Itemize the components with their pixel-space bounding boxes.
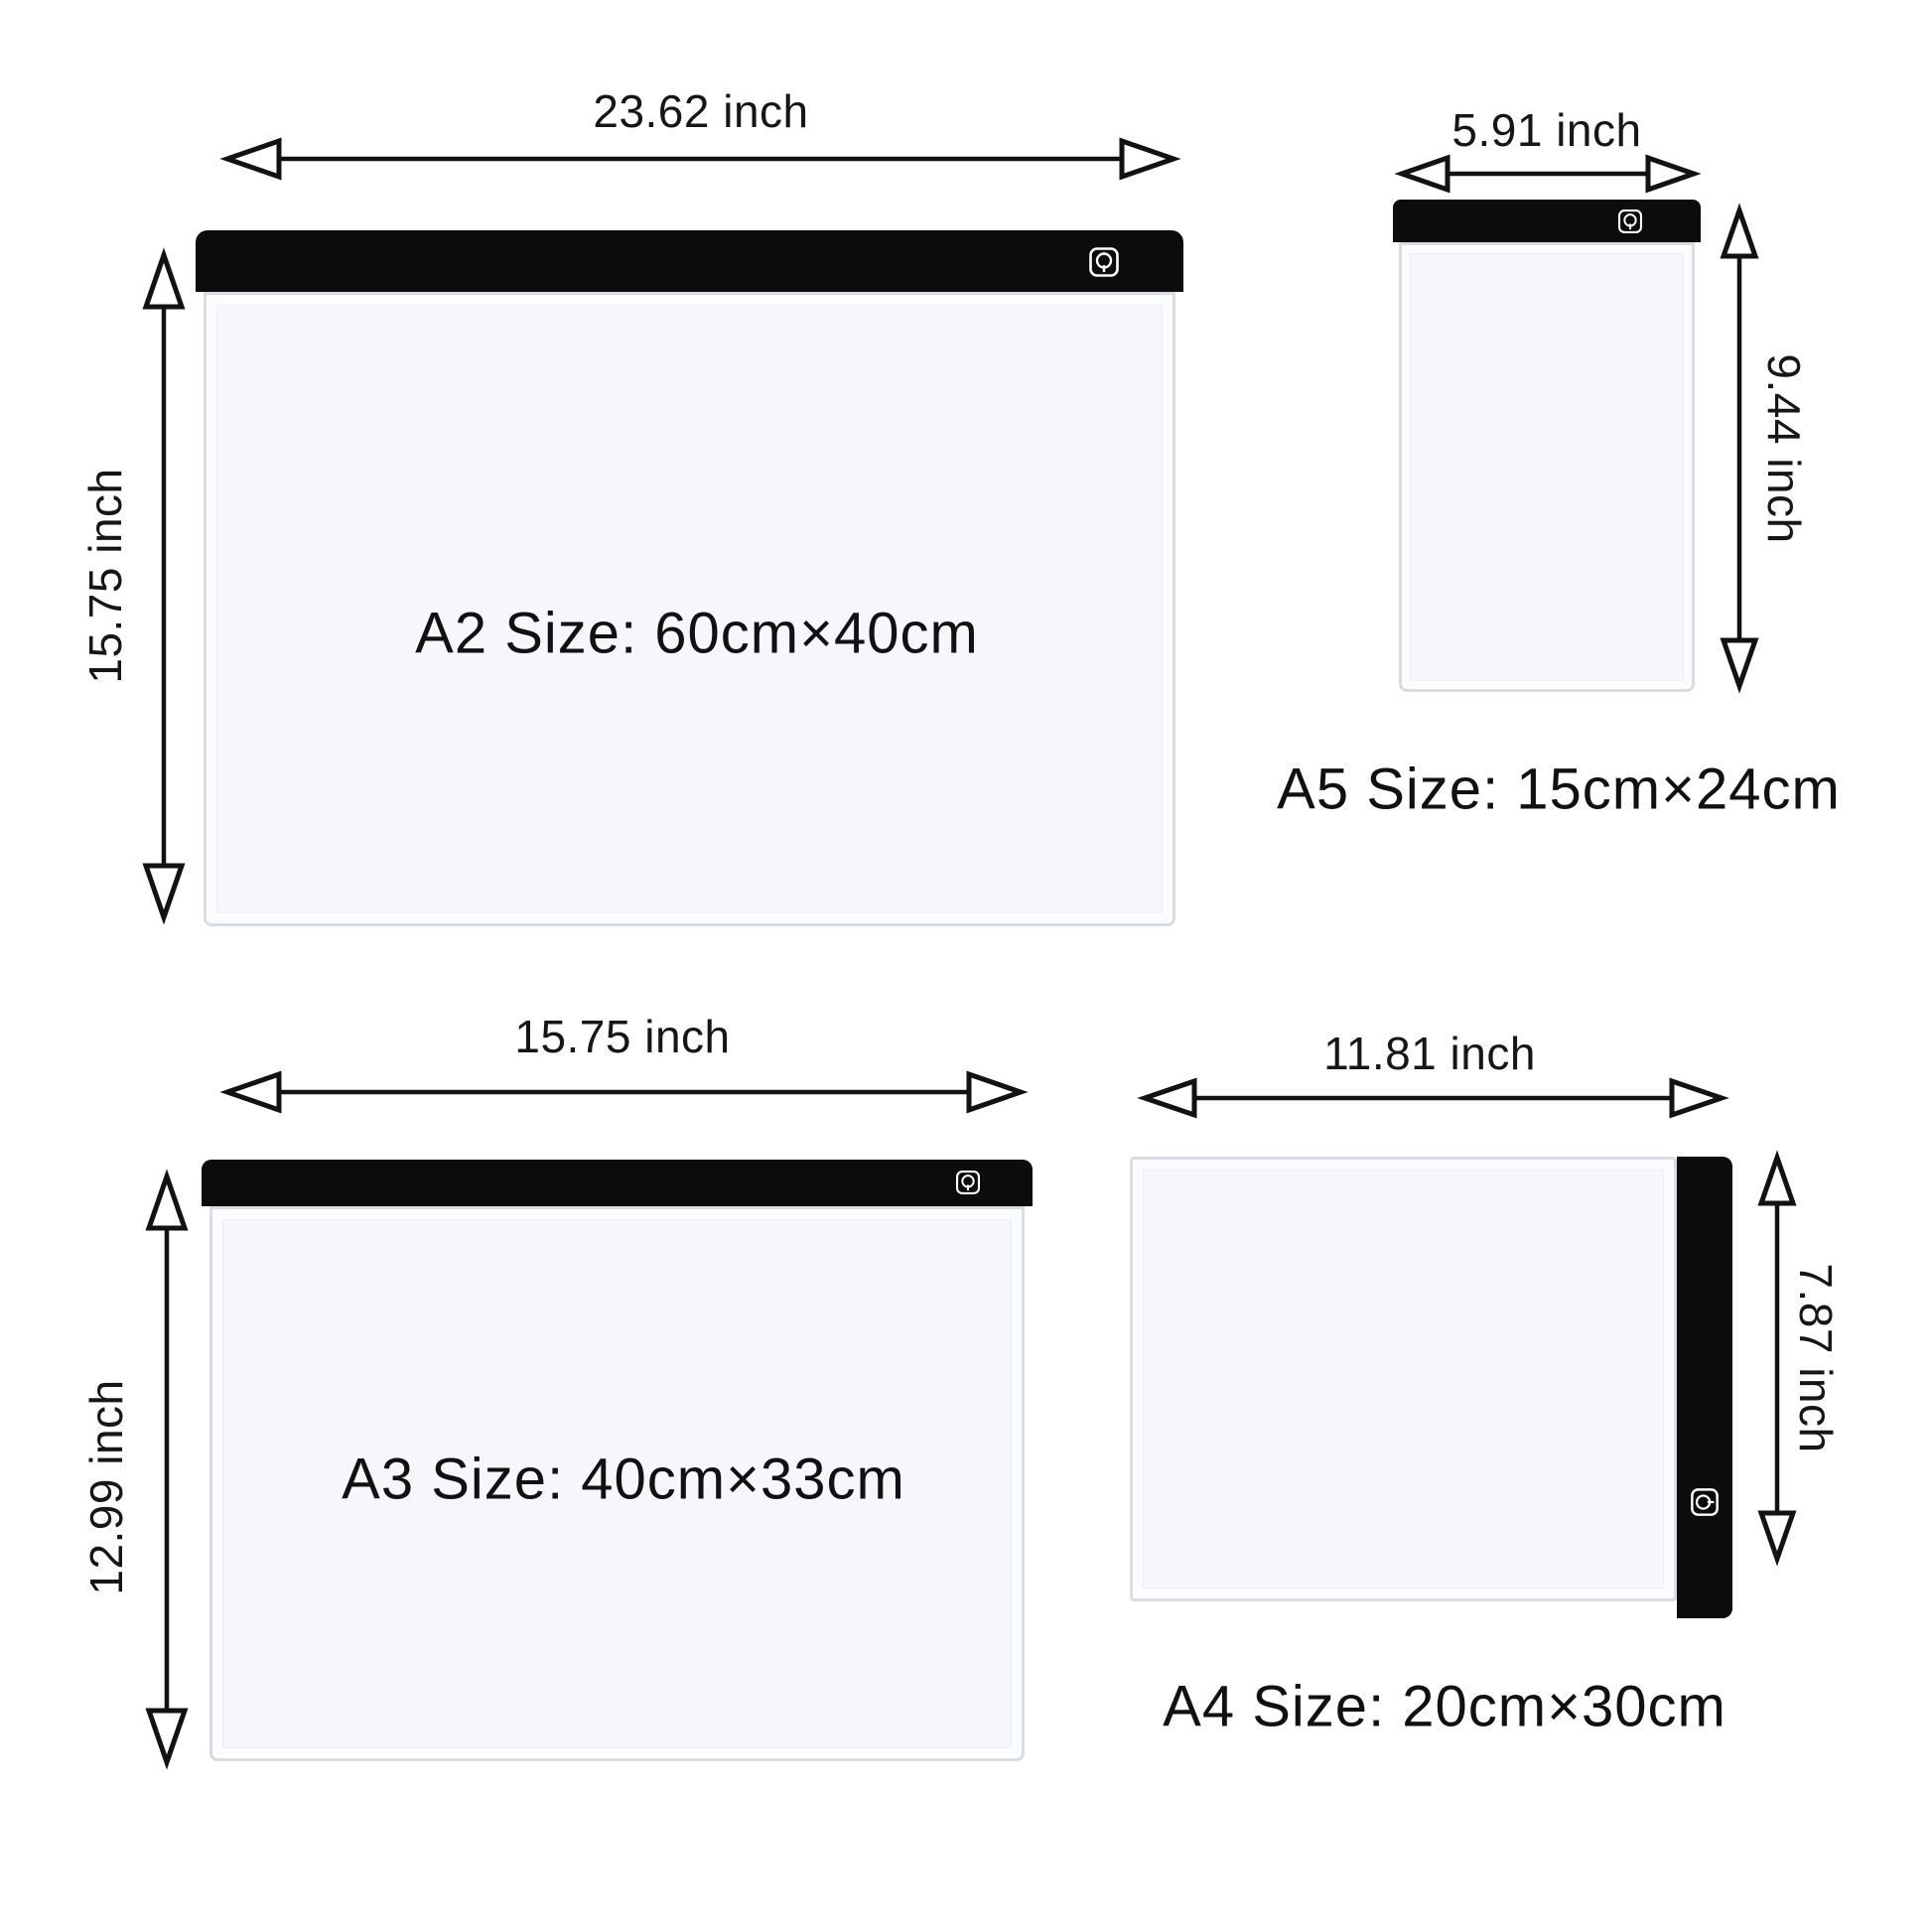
- power-icon: [1617, 208, 1643, 234]
- a5-width-arrow: [1398, 152, 1698, 196]
- a3-height-dimension-label: 12.99 inch: [79, 1379, 133, 1594]
- a4-size-caption: A4 Size: 20cm×30cm: [1163, 1674, 1726, 1740]
- a5-height-dimension-label: 9.44 inch: [1757, 353, 1811, 543]
- a4-pad-frame: [1130, 1157, 1677, 1601]
- power-icon: [1690, 1487, 1720, 1517]
- a2-width-arrow: [223, 137, 1177, 181]
- a5-height-arrow: [1718, 207, 1761, 690]
- a2-width-dimension-label: 23.62 inch: [593, 84, 808, 138]
- a2-led-bar: [196, 230, 1183, 292]
- a2-height-dimension-label: 15.75 inch: [78, 468, 132, 683]
- a5-pad-surface: [1410, 253, 1684, 681]
- a3-led-bar: [202, 1160, 1033, 1206]
- a5-led-bar: [1393, 200, 1701, 242]
- a3-size-caption: A3 Size: 40cm×33cm: [342, 1447, 905, 1513]
- a5-width-dimension-label: 5.91 inch: [1451, 103, 1641, 157]
- power-icon: [1088, 246, 1120, 278]
- a4-height-dimension-label: 7.87 inch: [1789, 1263, 1843, 1452]
- a3-width-dimension-label: 15.75 inch: [514, 1010, 730, 1063]
- a2-height-arrow: [142, 251, 186, 921]
- a2-size-caption: A2 Size: 60cm×40cm: [415, 601, 979, 667]
- a5-size-caption: A5 Size: 15cm×24cm: [1277, 757, 1841, 823]
- a4-light-pad: [1130, 1157, 1732, 1618]
- size-comparison-diagram: 23.62 inch 15.75 inch A2 Size: 60cm×40cm…: [0, 0, 1932, 1932]
- a4-led-bar: [1677, 1157, 1732, 1618]
- a5-light-pad: [1393, 200, 1701, 692]
- a4-width-arrow: [1141, 1076, 1725, 1120]
- a2-light-pad: [196, 230, 1183, 926]
- a4-pad-surface: [1143, 1170, 1664, 1588]
- a3-height-arrow: [145, 1173, 189, 1766]
- power-icon: [955, 1170, 981, 1195]
- a4-width-dimension-label: 11.81 inch: [1323, 1027, 1536, 1080]
- a5-pad-frame: [1399, 242, 1695, 692]
- a3-width-arrow: [223, 1070, 1025, 1114]
